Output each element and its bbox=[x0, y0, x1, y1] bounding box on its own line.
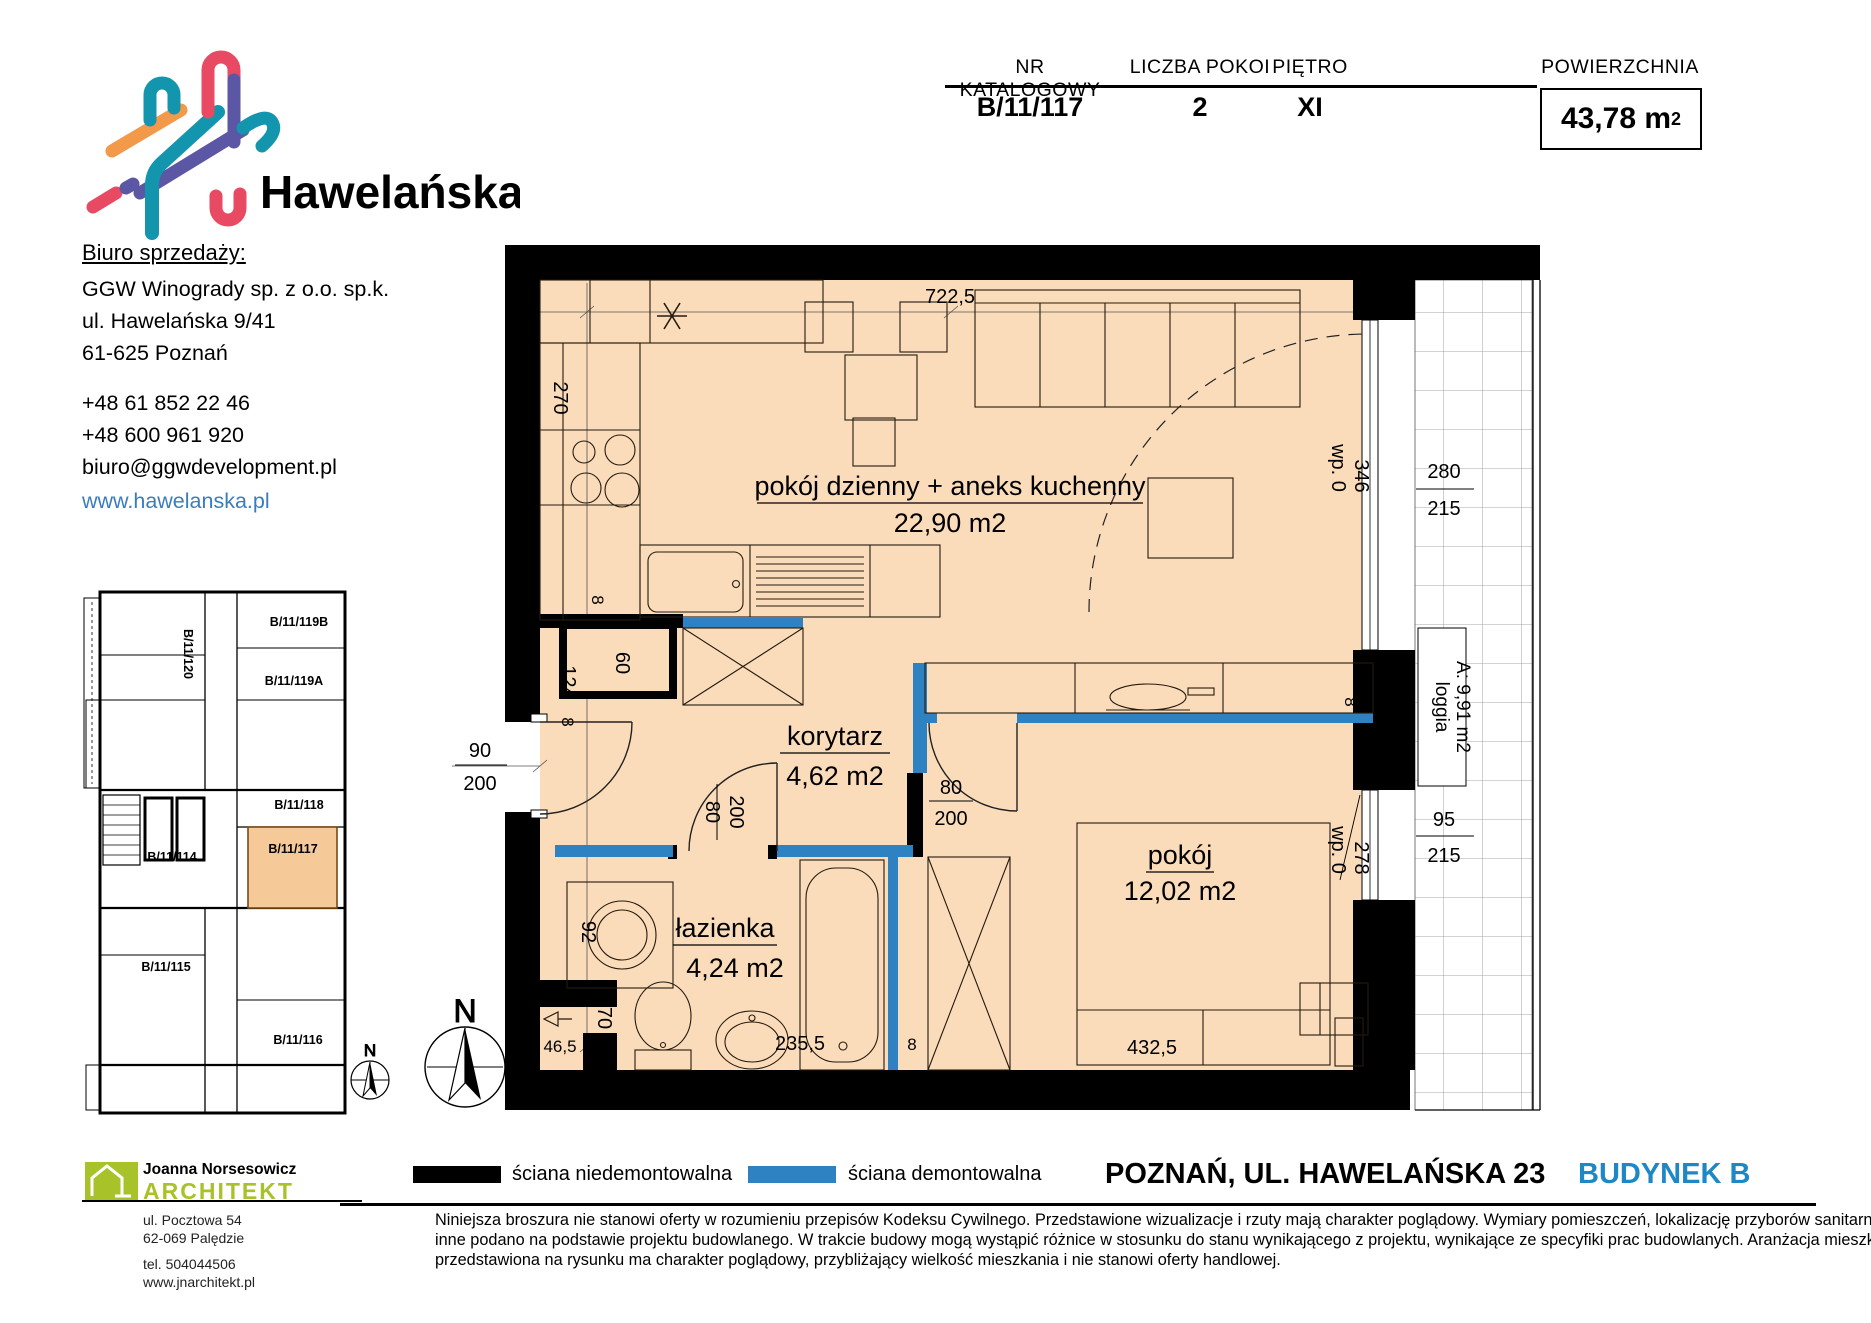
bathroom-label: łazienka bbox=[675, 913, 775, 943]
dim-465: 46,5 bbox=[543, 1037, 576, 1056]
dim-wp1-len: 346 bbox=[1350, 459, 1372, 492]
dim-roomdoor-w: 80 bbox=[940, 777, 962, 799]
dim-shaft: 60 bbox=[611, 652, 633, 674]
dim-70: 70 bbox=[593, 1007, 615, 1029]
north-arrow: N bbox=[425, 993, 505, 1107]
dim-roomdoor-h: 200 bbox=[934, 808, 967, 830]
disclaimer-line-1: Niniejsza broszura nie stanowi oferty w … bbox=[435, 1210, 1871, 1230]
unit-label: B/11/115 bbox=[141, 960, 190, 974]
legend-solid-label: ściana niedemontowalna bbox=[512, 1163, 732, 1186]
architect-phone: tel. 504044506 bbox=[143, 1256, 236, 1274]
north-label: N bbox=[453, 993, 476, 1029]
dim-win2-h: 215 bbox=[1427, 845, 1460, 867]
architect-city: 62-069 Palędzie bbox=[143, 1230, 244, 1248]
unit-label: B/11/120 bbox=[181, 629, 195, 679]
unit-label: B/11/119A bbox=[265, 674, 323, 688]
building-label: BUDYNEK B bbox=[1578, 1158, 1750, 1191]
legend-swatch-solid bbox=[413, 1166, 501, 1183]
loggia-label: loggia bbox=[1431, 682, 1452, 733]
corridor-label: korytarz bbox=[787, 721, 883, 751]
house-icon bbox=[85, 1162, 138, 1200]
architect-rule bbox=[82, 1200, 362, 1202]
loggia-area: A: 9,91 m2 bbox=[1452, 661, 1473, 753]
dim-kitchen: 270 bbox=[549, 381, 571, 414]
brochure-page: Hawelańska Biuro sprzedaży: GGW Winograd… bbox=[0, 0, 1871, 1323]
legend-removable-label: ściana demontowalna bbox=[848, 1163, 1041, 1186]
architect-logo bbox=[85, 1162, 138, 1200]
dim-bed-width: 432,5 bbox=[1127, 1037, 1177, 1059]
dim-win2-w: 95 bbox=[1433, 809, 1455, 831]
dim-wp2-len: 278 bbox=[1350, 841, 1372, 874]
floor-plan-svg: B/11/119B B/11/120 B/11/119A B/11/118 B/… bbox=[0, 0, 1871, 1323]
dim-bathdoor-w: 80 bbox=[701, 801, 723, 823]
corridor-area: 4,62 m2 bbox=[786, 761, 884, 791]
dim-28: 28 bbox=[1391, 1015, 1413, 1037]
living-room-label: pokój dzienny + aneks kuchenny bbox=[754, 471, 1146, 501]
dim-win1-w: 280 bbox=[1427, 461, 1460, 483]
bedroom-area: 12,02 m2 bbox=[1124, 876, 1237, 906]
disclaimer-line-2: inne podano na podstawie projektu budowl… bbox=[435, 1230, 1871, 1250]
location-address: POZNAŃ, UL. HAWELAŃSKA 23 bbox=[1105, 1158, 1545, 1191]
unit-label: B/11/119B bbox=[270, 615, 328, 629]
dim-8b: 8 bbox=[558, 717, 577, 726]
architect-street: ul. Pocztowa 54 bbox=[143, 1212, 242, 1230]
mini-north-label: N bbox=[364, 1041, 376, 1060]
dim-wp2: wp. 0 bbox=[1327, 825, 1349, 874]
living-room-area: 22,90 m2 bbox=[894, 508, 1007, 538]
dim-wp1: wp. 0 bbox=[1327, 443, 1349, 492]
dim-bathdoor-h: 200 bbox=[725, 795, 747, 828]
dim-entry-height: 200 bbox=[463, 773, 496, 795]
dim-124: 124 bbox=[557, 665, 579, 698]
unit-label: B/11/114 bbox=[147, 850, 196, 864]
unit-label-highlighted: B/11/117 bbox=[268, 842, 317, 856]
dim-win1-h: 215 bbox=[1427, 498, 1460, 520]
disclaimer-line-3: przedstawiona na rysunku ma charakter po… bbox=[435, 1250, 1871, 1270]
unit-label: B/11/118 bbox=[274, 798, 323, 812]
architect-name: Joanna Norsesowicz bbox=[143, 1161, 296, 1179]
unit-label: B/11/116 bbox=[273, 1033, 322, 1047]
mini-plan-highlighted-unit bbox=[248, 827, 337, 908]
mini-north-arrow: N bbox=[351, 1041, 389, 1099]
dim-8d: 8 bbox=[1341, 697, 1360, 706]
dim-washer: 92 bbox=[577, 921, 599, 943]
bedroom-label: pokój bbox=[1148, 840, 1213, 870]
bathroom-area: 4,24 m2 bbox=[686, 953, 784, 983]
disclaimer: Niniejsza broszura nie stanowi oferty w … bbox=[435, 1210, 1871, 1270]
dim-entry-width: 90 bbox=[469, 740, 491, 762]
dim-top-width: 722,5 bbox=[925, 286, 975, 308]
footer-rule bbox=[340, 1203, 1816, 1206]
dim-8a: 8 bbox=[588, 595, 607, 604]
architect-website[interactable]: www.jnarchitekt.pl bbox=[143, 1274, 255, 1292]
dim-2355: 235,5 bbox=[775, 1033, 825, 1055]
dim-8c: 8 bbox=[907, 1035, 916, 1054]
legend-swatch-removable bbox=[748, 1166, 836, 1183]
